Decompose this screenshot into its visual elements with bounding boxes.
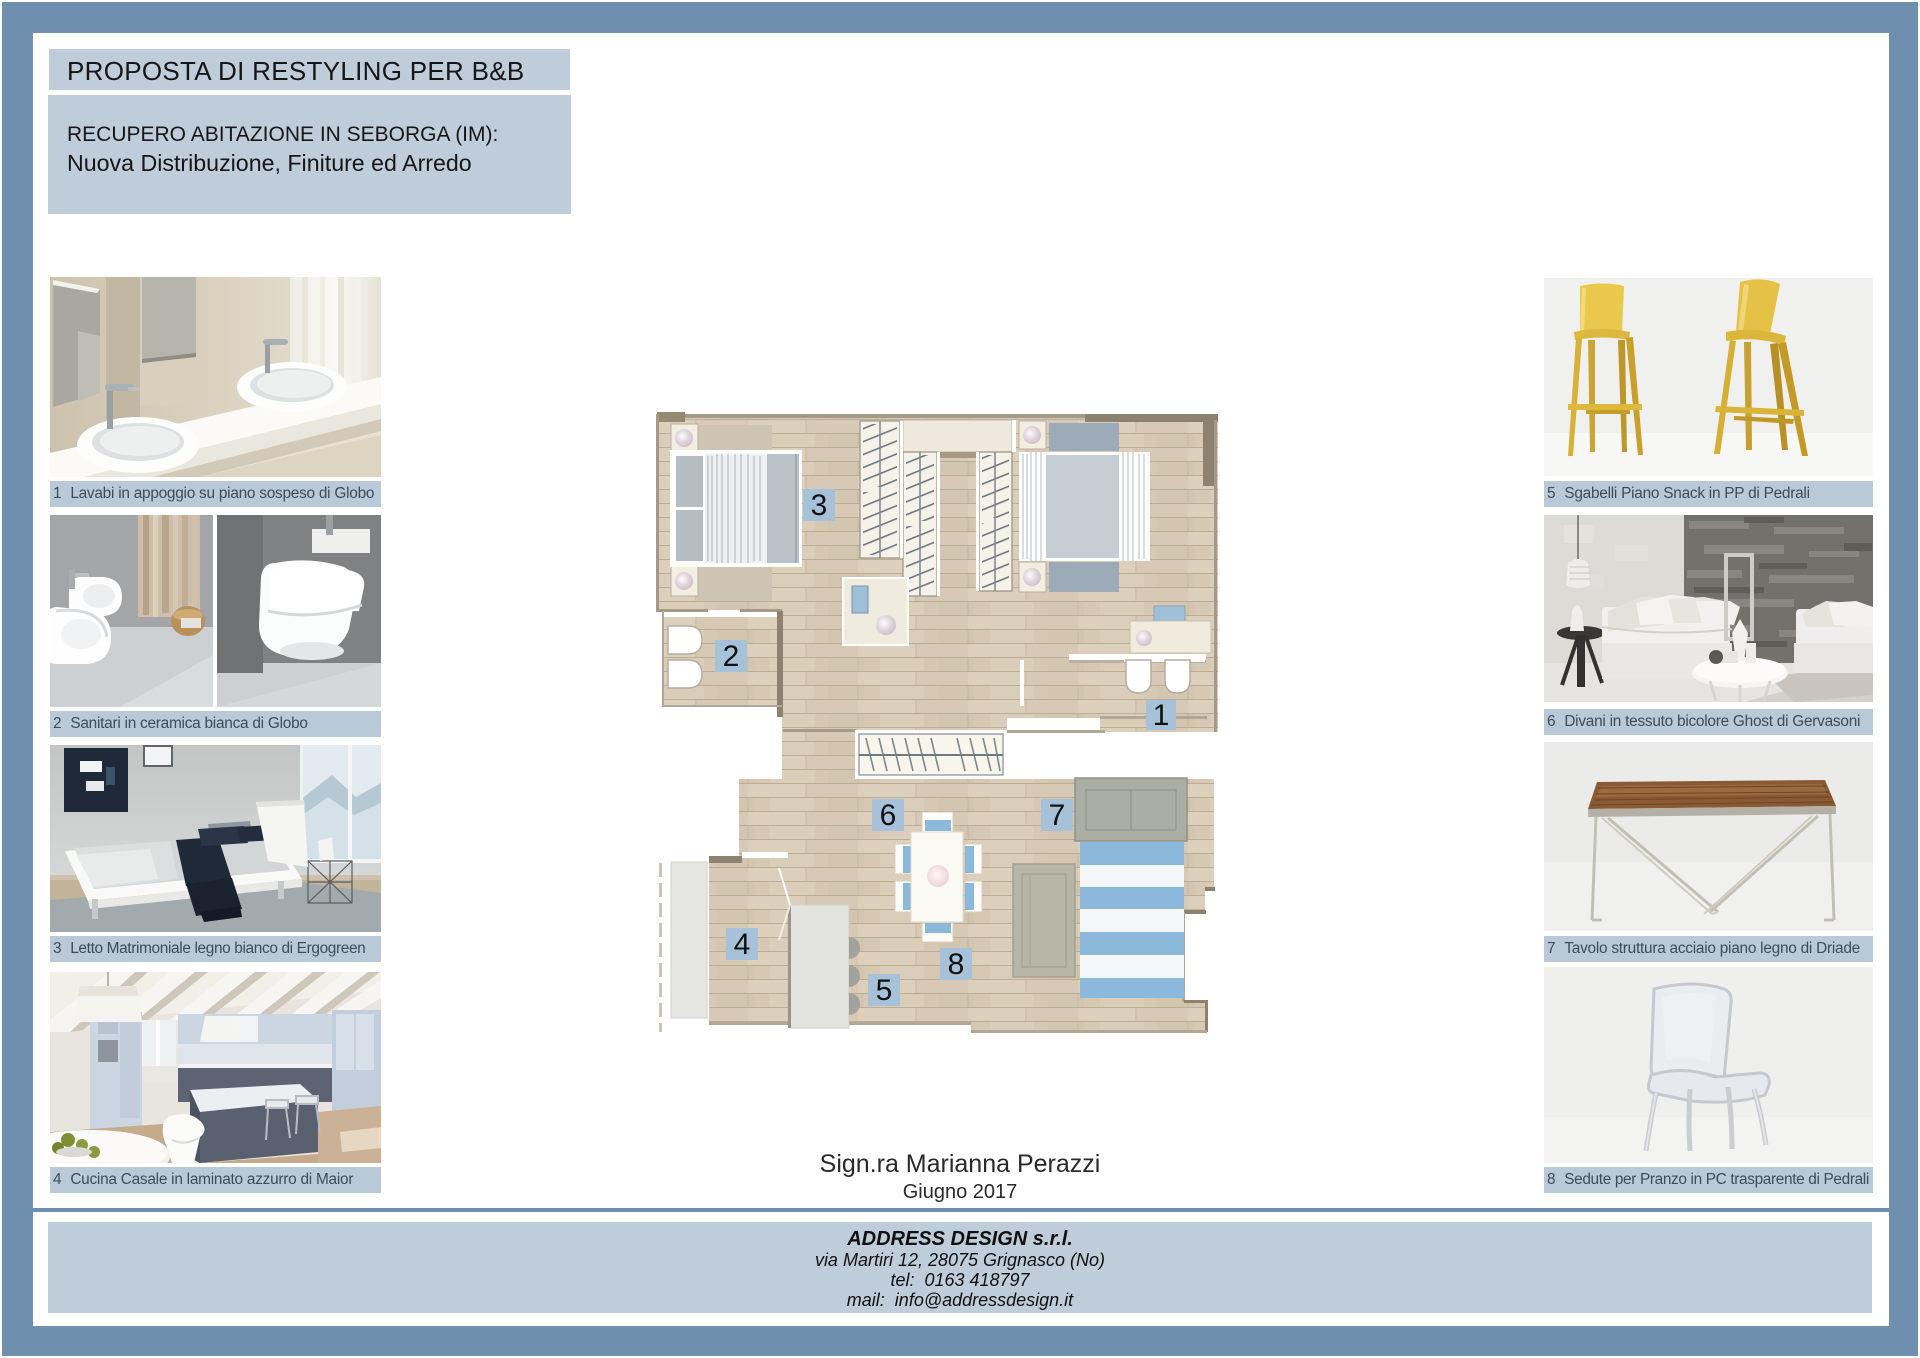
svg-text:3: 3 xyxy=(811,489,828,522)
svg-text:1: 1 xyxy=(1153,699,1170,732)
svg-text:8: 8 xyxy=(948,948,965,981)
svg-text:5: 5 xyxy=(876,974,893,1007)
svg-text:7: 7 xyxy=(1049,799,1066,832)
svg-text:4: 4 xyxy=(734,928,751,961)
svg-text:2: 2 xyxy=(723,640,740,673)
svg-text:6: 6 xyxy=(880,799,897,832)
